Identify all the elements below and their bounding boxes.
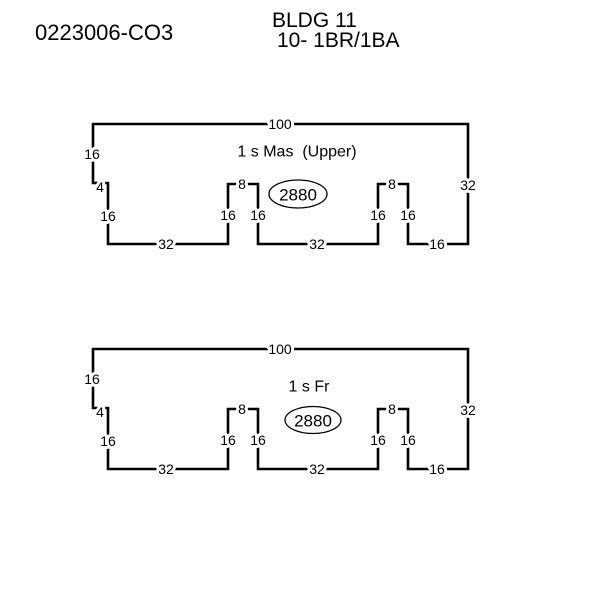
- dim-notch2-top: 8: [388, 401, 396, 417]
- dim-top: 100: [268, 116, 292, 132]
- dim-bottom-left: 32: [158, 236, 174, 252]
- dim-bottom-mid: 32: [309, 236, 325, 252]
- dim-notch2-left: 16: [370, 207, 386, 223]
- dim-left-upper: 16: [84, 146, 100, 162]
- sketch-name-label: 1 s Mas (Upper): [237, 144, 356, 161]
- building-subtitle: 10- 1BR/1BA: [277, 29, 400, 52]
- sketch-upper: 1 s Mas (Upper) 2880 100 16 4 16 32 16 8…: [84, 116, 476, 252]
- dim-bottom-right: 16: [429, 461, 445, 477]
- dim-left-jog: 4: [96, 404, 104, 420]
- dim-notch1-top: 8: [238, 401, 246, 417]
- dim-left-upper: 16: [84, 371, 100, 387]
- sketch-outline: [93, 349, 468, 469]
- dim-left-jog: 4: [96, 179, 104, 195]
- sketch-page: 0223006-CO3 BLDG 11 10- 1BR/1BA 1 s Mas …: [0, 0, 600, 600]
- dim-notch1-right: 16: [250, 207, 266, 223]
- area-value: 2880: [279, 186, 317, 205]
- dim-notch1-left: 16: [220, 432, 236, 448]
- dim-left-lower: 16: [100, 208, 116, 224]
- sketch-first-floor: 1 s Fr 2880 100 16 4 16 32 16 8 16 32 16…: [84, 341, 476, 477]
- dim-right: 32: [460, 402, 476, 418]
- dim-notch2-right: 16: [400, 207, 416, 223]
- dim-notch1-right: 16: [250, 432, 266, 448]
- dim-top: 100: [268, 341, 292, 357]
- dim-bottom-left: 32: [158, 461, 174, 477]
- dim-notch2-right: 16: [400, 432, 416, 448]
- dim-bottom-right: 16: [429, 236, 445, 252]
- dim-right: 32: [460, 177, 476, 193]
- sketch-outline: [93, 124, 468, 244]
- sketch-name-label: 1 s Fr: [289, 379, 331, 396]
- area-value: 2880: [294, 412, 332, 431]
- dim-notch1-top: 8: [238, 176, 246, 192]
- dim-notch2-left: 16: [370, 432, 386, 448]
- dim-left-lower: 16: [100, 433, 116, 449]
- dim-notch2-top: 8: [388, 176, 396, 192]
- dim-bottom-mid: 32: [309, 461, 325, 477]
- file-number: 0223006-CO3: [35, 20, 173, 45]
- dim-notch1-left: 16: [220, 207, 236, 223]
- sketch-canvas: 0223006-CO3 BLDG 11 10- 1BR/1BA 1 s Mas …: [0, 0, 600, 600]
